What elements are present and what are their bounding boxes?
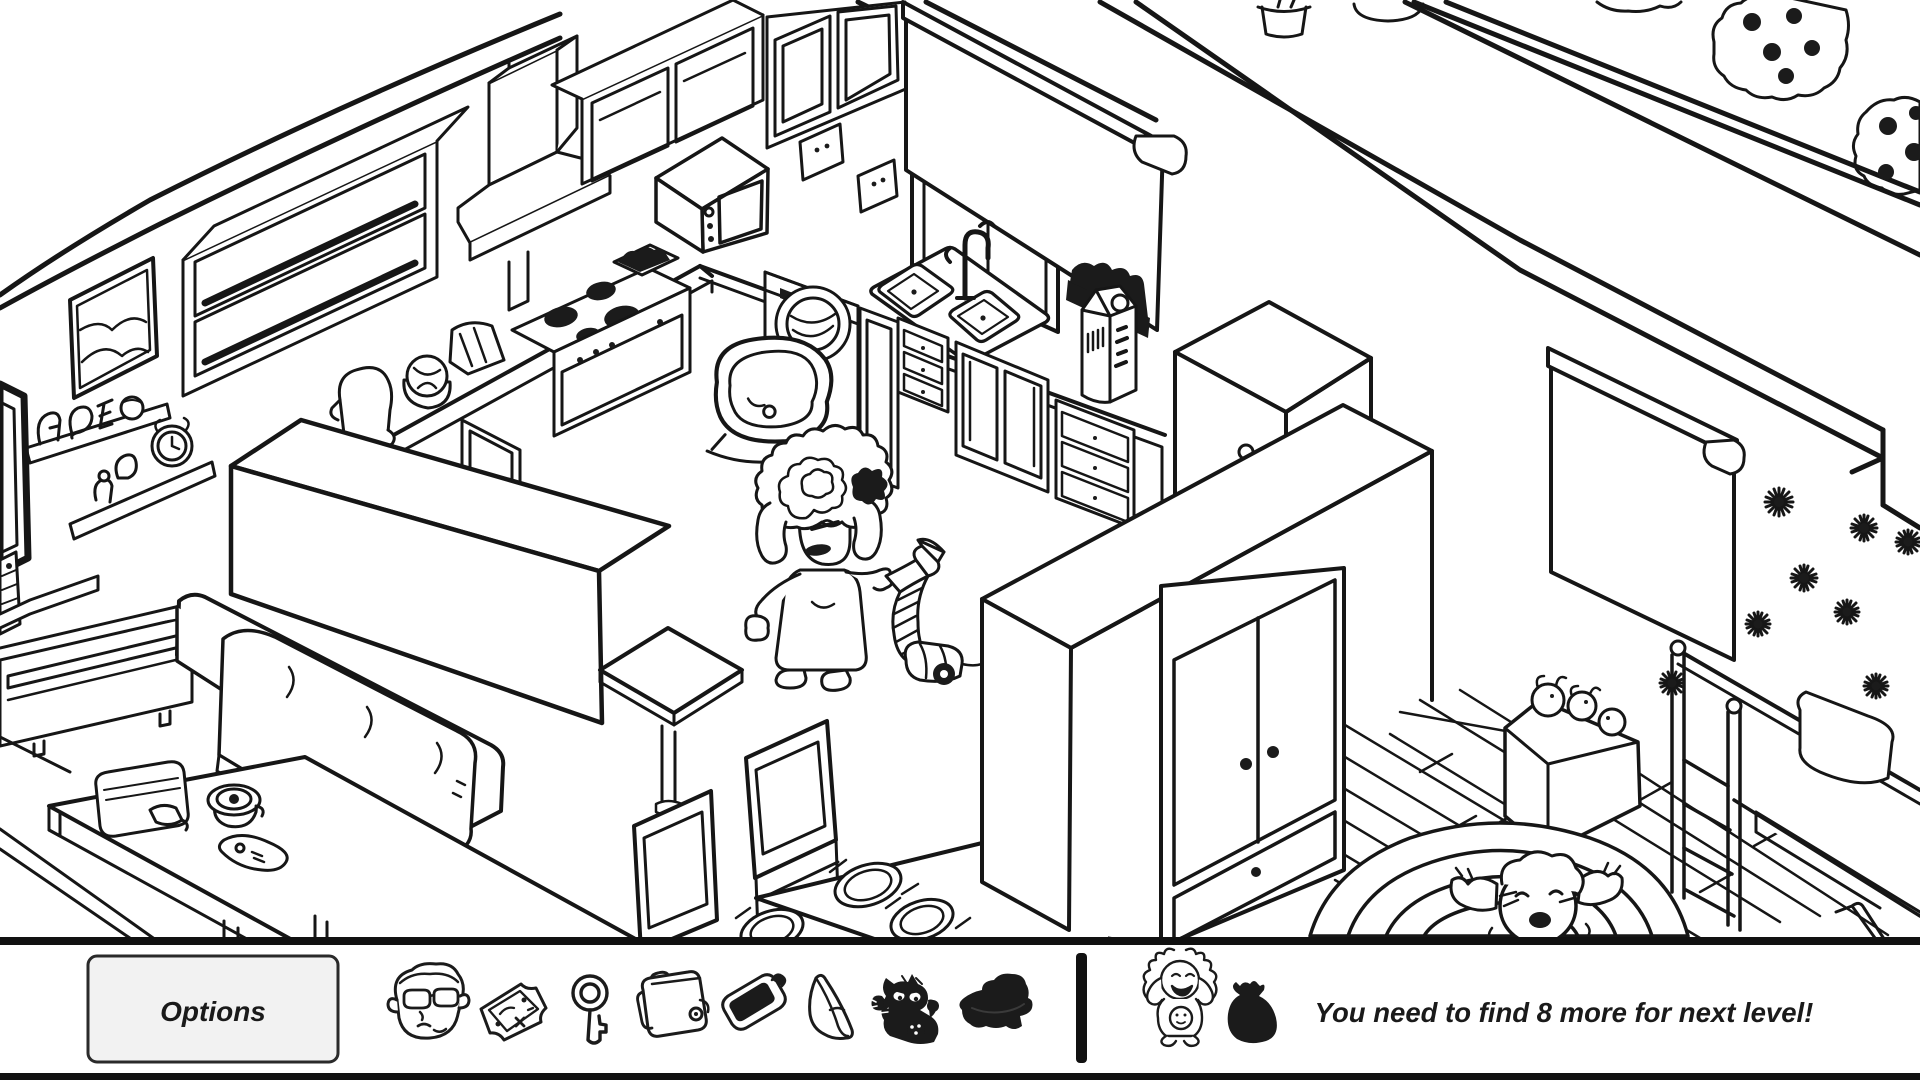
svg-text:You need to find 8 more for ne: You need to find 8 more for next level! [1315, 997, 1814, 1028]
svg-text:Options: Options [160, 996, 266, 1027]
